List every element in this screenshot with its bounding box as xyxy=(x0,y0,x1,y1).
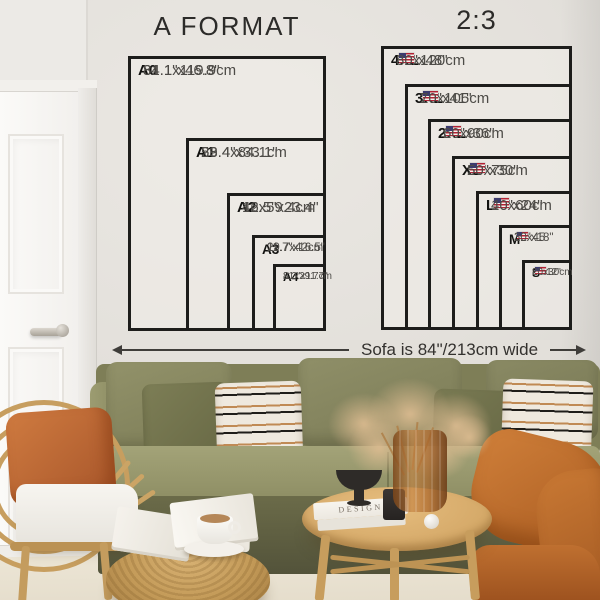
door-handle-rosette xyxy=(56,324,69,337)
size-cm: 40x60cm xyxy=(491,198,552,215)
size-cm: 84.1x119.9cm xyxy=(143,63,236,80)
size-cm: 21x29.7cm xyxy=(283,271,332,282)
throw-blanket xyxy=(470,545,600,600)
cup-handle xyxy=(228,521,241,534)
amber-glass-vase xyxy=(393,430,447,512)
size-cm: 20x30cm xyxy=(532,267,573,278)
size-cm: 59.4x84.1cm xyxy=(201,145,287,162)
bowl-foot xyxy=(347,500,371,506)
size-box-s: S 8"x12" 20x30cm xyxy=(522,260,572,330)
arrowhead-left-icon xyxy=(112,345,122,355)
ratio-2-3-chart: 4XL 32"x48" 80x120cm 3XL 27"x41" 70x105c… xyxy=(381,46,572,330)
size-cm: 29.7x42cm xyxy=(267,242,323,255)
size-cm: 60x90cm xyxy=(443,126,504,143)
ratio-2-3-title: 2:3 xyxy=(381,5,572,36)
size-cm: 80x120cm xyxy=(396,53,465,70)
a-format-chart: A0 31.1"x46.8" 84.1x119.9cm A1 23.4"x33.… xyxy=(128,56,326,331)
dried-plant xyxy=(446,414,492,460)
a-format-title: A FORMAT xyxy=(128,11,326,42)
size-cm: 30x45 xyxy=(514,232,545,245)
poster-size-guide-scene: A FORMAT 2:3 A0 31.1"x46.8" 84.1x119.9cm… xyxy=(0,0,600,600)
size-box-a4: A4 8.3"x11.7" 21x29.7cm xyxy=(273,264,326,331)
arrowhead-right-icon xyxy=(576,345,586,355)
size-cm: 70x105cm xyxy=(420,91,489,108)
table-leg xyxy=(390,548,399,600)
door-panel-upper xyxy=(8,134,64,294)
wall-molding-panel xyxy=(0,0,88,84)
size-cm: 50x75cm xyxy=(467,163,528,180)
decor-sphere xyxy=(424,514,439,529)
coffee-surface xyxy=(200,514,230,523)
size-cm: 42x59.4cm xyxy=(242,200,315,217)
